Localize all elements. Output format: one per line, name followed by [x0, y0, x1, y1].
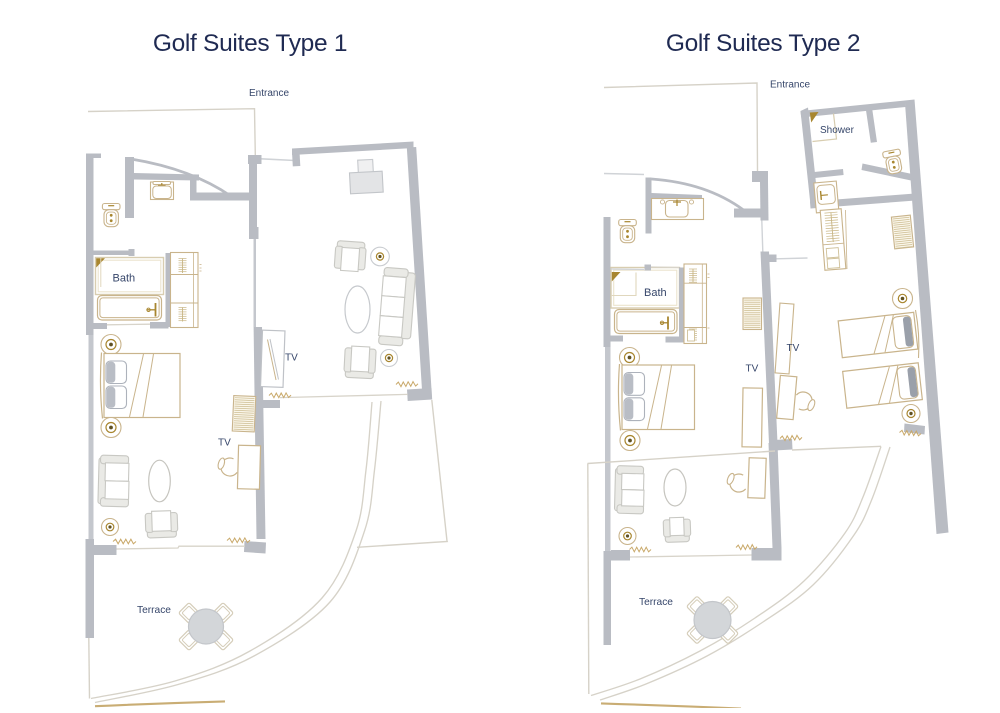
svg-text:Golf Suites Type 2: Golf Suites Type 2 — [666, 30, 860, 57]
svg-text:Golf Suites Type 1: Golf Suites Type 1 — [153, 30, 347, 57]
svg-text:Shower: Shower — [820, 125, 855, 136]
svg-text:Terrace: Terrace — [639, 597, 673, 608]
svg-text:TV: TV — [218, 438, 231, 449]
svg-text:TV: TV — [787, 343, 800, 354]
svg-text:Entrance: Entrance — [249, 88, 289, 99]
svg-text:Terrace: Terrace — [137, 605, 171, 616]
svg-text:Entrance: Entrance — [770, 80, 810, 91]
svg-text:TV: TV — [746, 364, 759, 375]
svg-text:TV: TV — [285, 353, 298, 364]
svg-text:Bath: Bath — [113, 273, 136, 285]
svg-text:Bath: Bath — [644, 287, 667, 299]
